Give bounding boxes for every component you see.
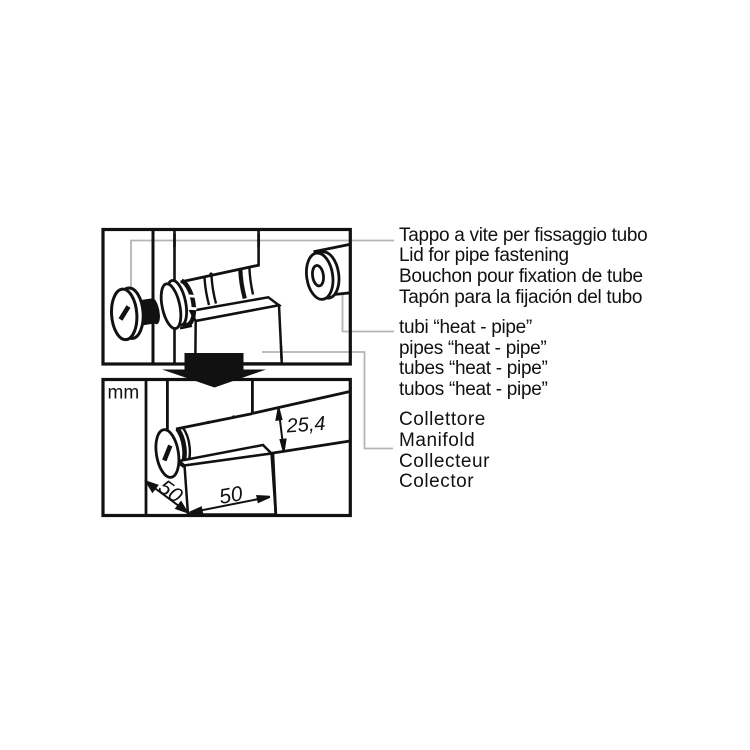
svg-text:mm: mm	[108, 383, 140, 404]
svg-text:25,4: 25,4	[285, 413, 326, 438]
svg-text:50: 50	[217, 482, 244, 509]
